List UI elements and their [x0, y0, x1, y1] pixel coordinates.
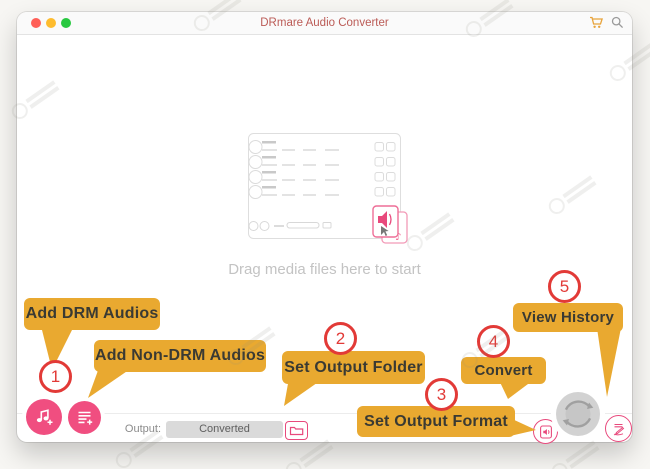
search-icon[interactable]: [611, 16, 624, 29]
speaker-icon: [373, 206, 398, 237]
music-note-plus-icon: [33, 406, 55, 428]
add-non-drm-audios-button[interactable]: [68, 401, 101, 434]
step-badge-4: 4: [477, 325, 510, 358]
step-badge-3: 3: [425, 378, 458, 411]
output-format-button[interactable]: [533, 419, 558, 444]
playlist-illustration: ♪: [245, 130, 413, 248]
convert-button[interactable]: [556, 392, 600, 436]
bottom-bar-divider: [17, 413, 632, 414]
screenshot-stage: DRmare Audio Converter: [0, 0, 650, 469]
step-badge-1: 1: [39, 360, 72, 393]
step-badge-5: 5: [548, 270, 581, 303]
list-plus-icon: [74, 407, 95, 428]
callout-set-output-folder: Set Output Folder: [282, 351, 425, 384]
callout-convert: Convert: [461, 357, 546, 384]
add-drm-audios-button[interactable]: [26, 399, 62, 435]
window-title: DRmare Audio Converter: [17, 12, 632, 34]
folder-icon: [289, 425, 304, 436]
history-button[interactable]: [605, 415, 632, 442]
cart-icon[interactable]: [589, 16, 604, 29]
output-folder-field[interactable]: Converted: [166, 421, 283, 438]
callout-add-drm-audios: Add DRM Audios: [24, 298, 160, 330]
titlebar: DRmare Audio Converter: [17, 12, 632, 35]
drop-hint: Drag media files here to start: [17, 261, 632, 278]
choose-output-folder-button[interactable]: [285, 421, 308, 440]
sync-arrows-icon: [556, 392, 600, 436]
callout-set-output-format: Set Output Format: [357, 406, 515, 437]
step-badge-2: 2: [324, 322, 357, 355]
callout-add-non-drm-audios: Add Non-DRM Audios: [94, 340, 266, 372]
callout-view-history: View History: [513, 303, 623, 332]
list-pen-icon: [610, 420, 627, 437]
output-label: Output:: [117, 423, 161, 435]
speaker-document-icon: [538, 424, 554, 440]
